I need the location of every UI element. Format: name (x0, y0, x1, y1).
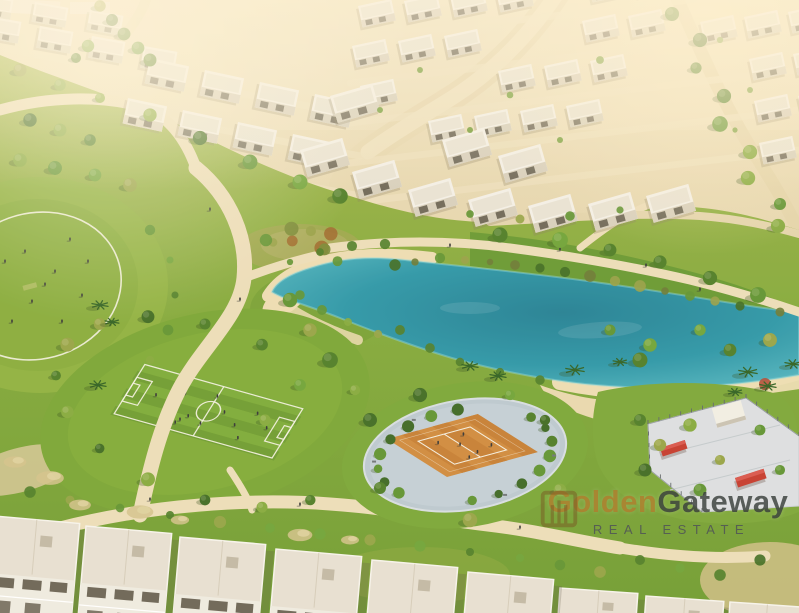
scene-canvas (0, 0, 799, 613)
aerial-render: GoldenGateway REAL ESTATE (0, 0, 799, 613)
sun-haze (0, 0, 799, 613)
